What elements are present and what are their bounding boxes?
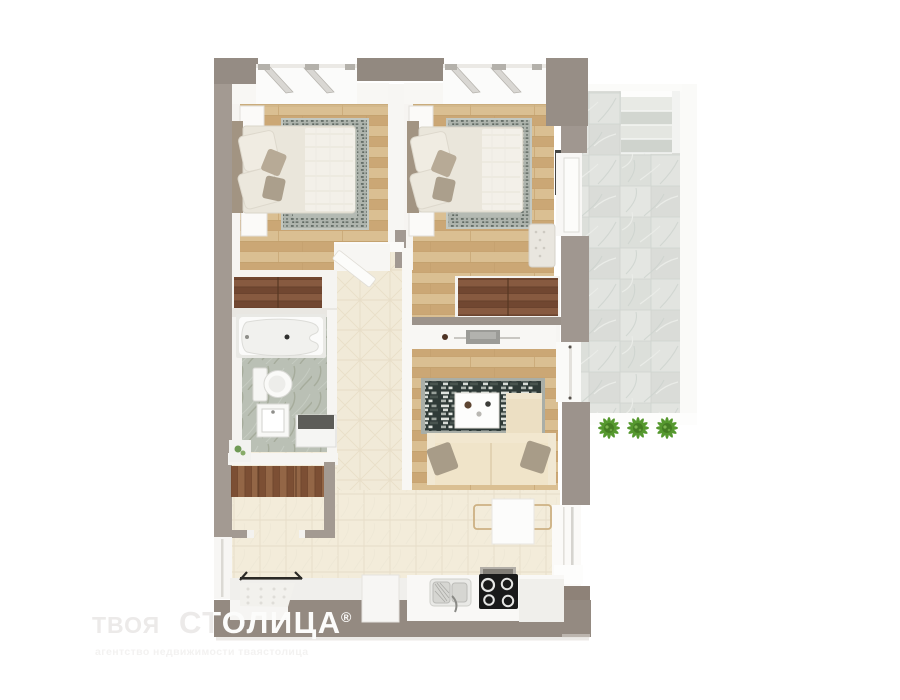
svg-text:®: ® — [341, 609, 352, 625]
svg-text:ТВОЯ: ТВОЯ — [92, 612, 160, 638]
svg-text:агентство недвижимости тваясто: агентство недвижимости тваястолица — [95, 646, 309, 658]
